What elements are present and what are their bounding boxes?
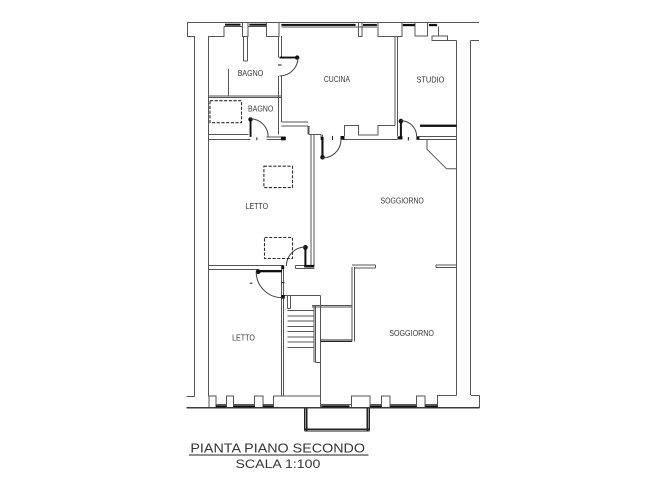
svg-text:BAGNO: BAGNO <box>248 105 273 114</box>
svg-text:CUCINA: CUCINA <box>324 75 351 84</box>
svg-text:SCALA 1:100: SCALA 1:100 <box>236 457 321 471</box>
svg-text:LETTO: LETTO <box>246 202 269 211</box>
svg-text:LETTO: LETTO <box>232 333 255 342</box>
svg-text:STUDIO: STUDIO <box>417 75 445 84</box>
svg-text:BAGNO: BAGNO <box>238 69 264 78</box>
svg-text:SOGGIORNO: SOGGIORNO <box>389 329 434 338</box>
svg-text:SOGGIORNO: SOGGIORNO <box>381 196 424 205</box>
svg-text:PIANTA PIANO SECONDO: PIANTA PIANO SECONDO <box>190 440 365 455</box>
